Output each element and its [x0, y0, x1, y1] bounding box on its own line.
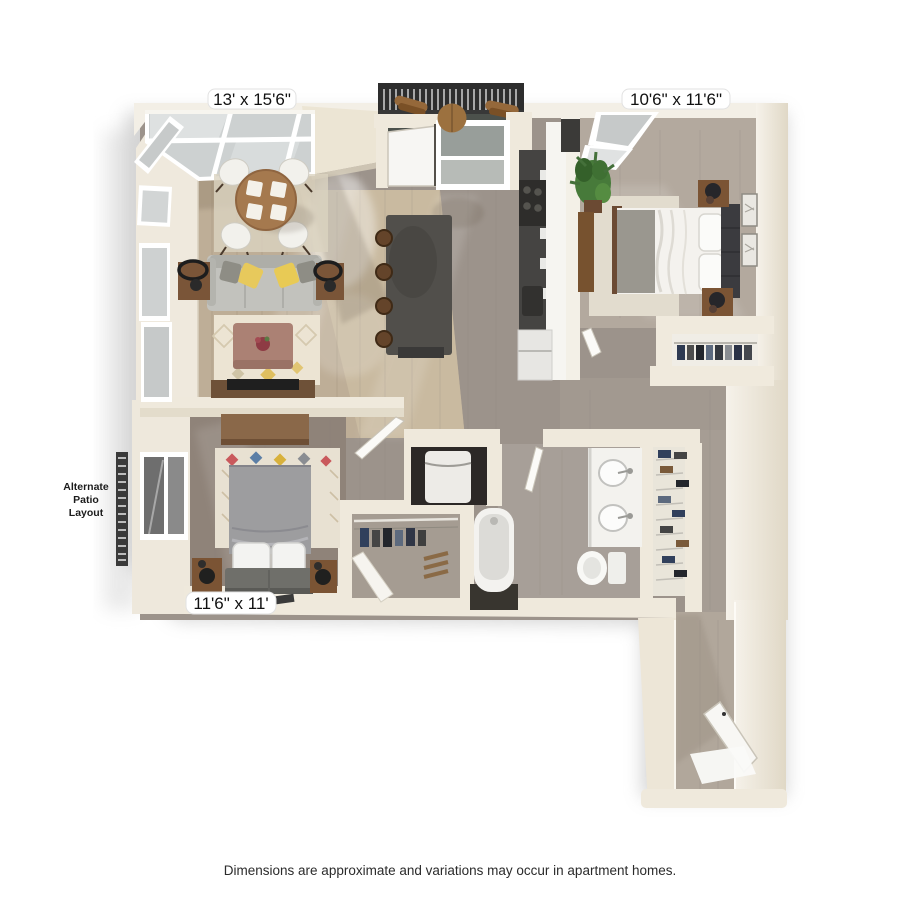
svg-text:Patio: Patio [73, 494, 99, 506]
svg-text:11'6" x 11': 11'6" x 11' [193, 594, 268, 613]
svg-text:13' x 15'6": 13' x 15'6" [213, 90, 291, 109]
svg-text:Layout: Layout [69, 507, 104, 519]
svg-text:10'6" x 11'6": 10'6" x 11'6" [630, 90, 722, 109]
svg-text:Alternate: Alternate [63, 481, 109, 493]
svg-text:Dimensions are approximate and: Dimensions are approximate and variation… [224, 863, 676, 878]
